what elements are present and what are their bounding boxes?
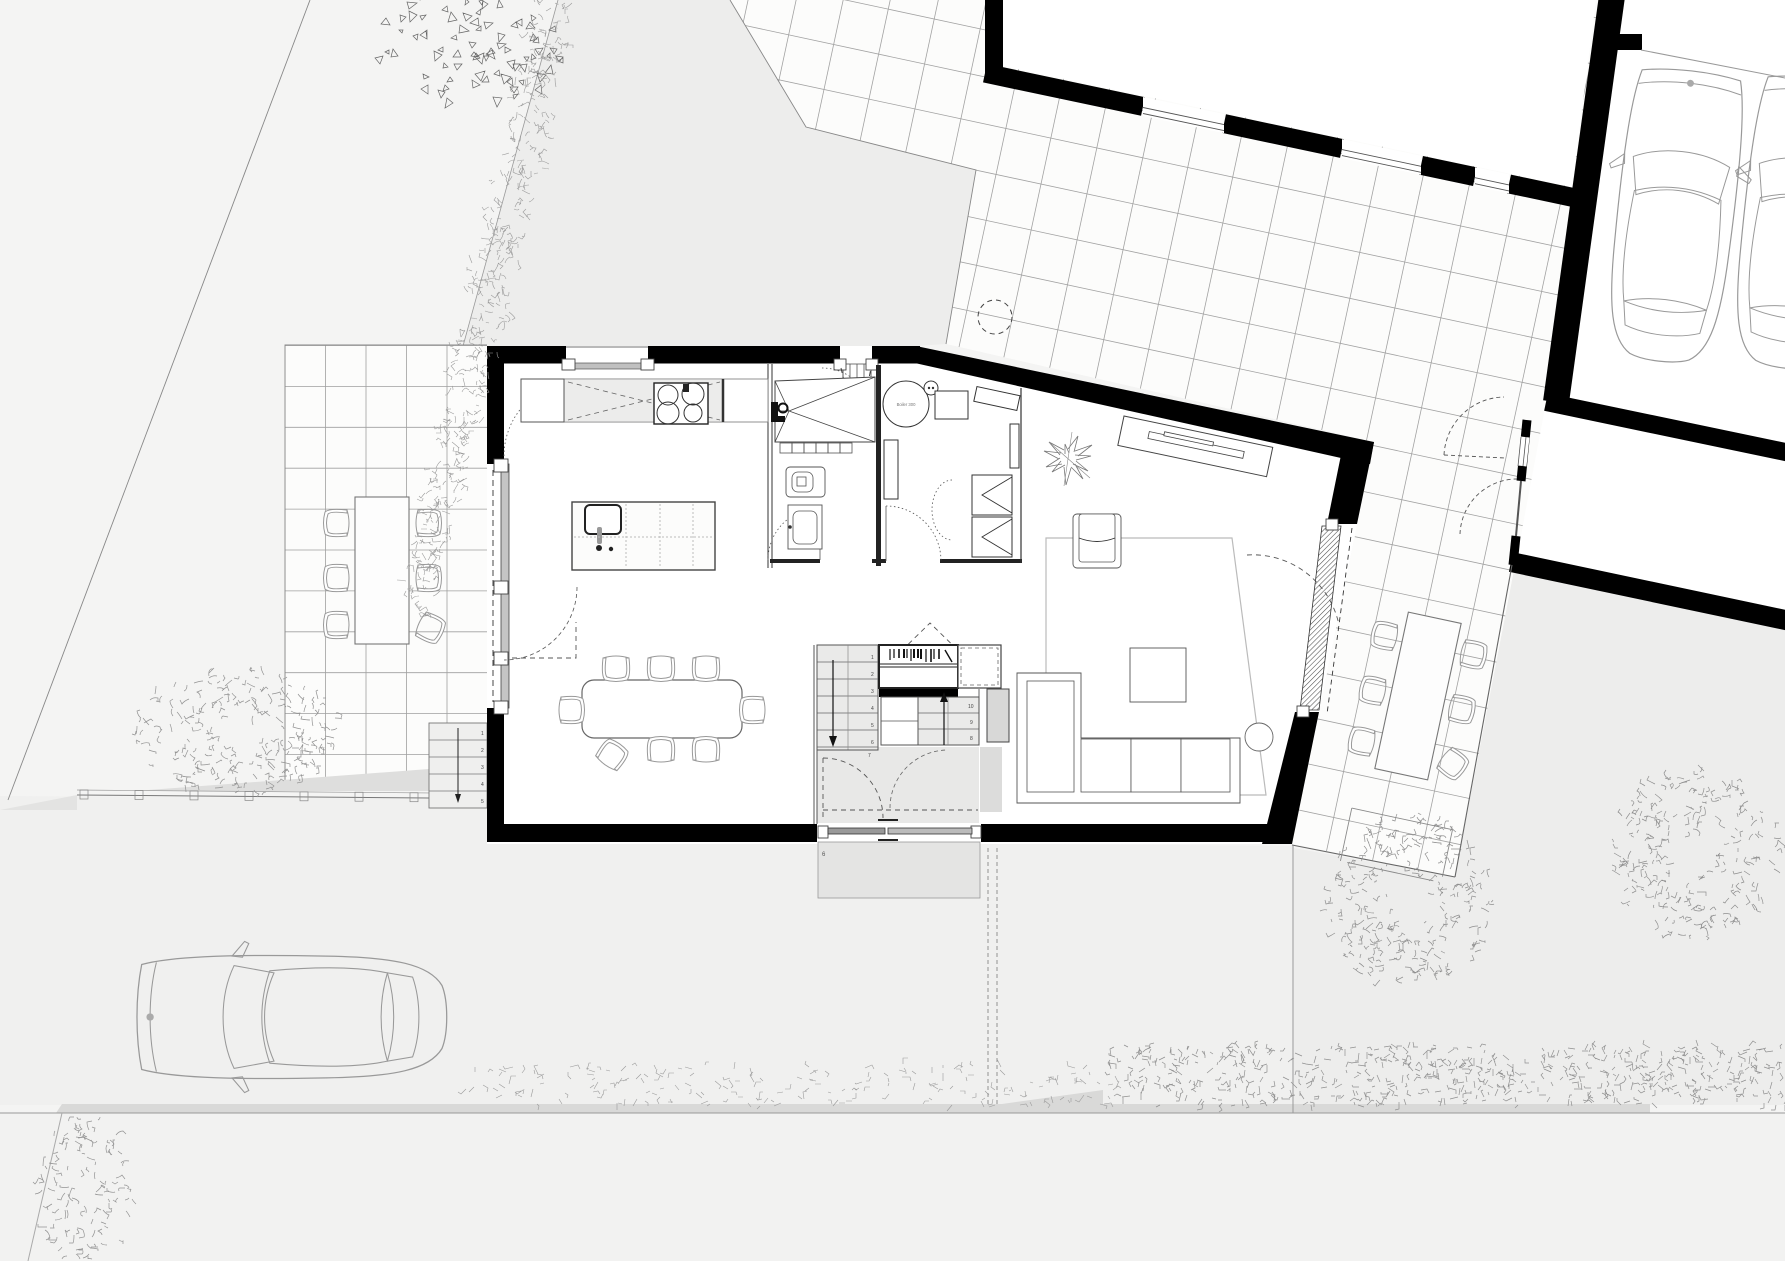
svg-text:5: 5 [871, 723, 874, 729]
svg-text:4: 4 [481, 782, 484, 788]
svg-text:1: 1 [481, 731, 484, 737]
svg-text:2: 2 [871, 672, 874, 678]
svg-text:4: 4 [871, 706, 874, 712]
svg-text:Boiler 300: Boiler 300 [897, 402, 917, 407]
svg-text:3: 3 [871, 689, 874, 695]
svg-text:10: 10 [968, 704, 974, 710]
svg-text:8: 8 [970, 736, 973, 742]
svg-text:7: 7 [868, 753, 871, 759]
svg-text:2: 2 [481, 748, 484, 754]
svg-text:5: 5 [481, 799, 484, 805]
svg-text:3: 3 [481, 765, 484, 771]
svg-text:1: 1 [871, 655, 874, 661]
svg-text:9: 9 [970, 720, 973, 726]
svg-text:6: 6 [871, 740, 874, 746]
